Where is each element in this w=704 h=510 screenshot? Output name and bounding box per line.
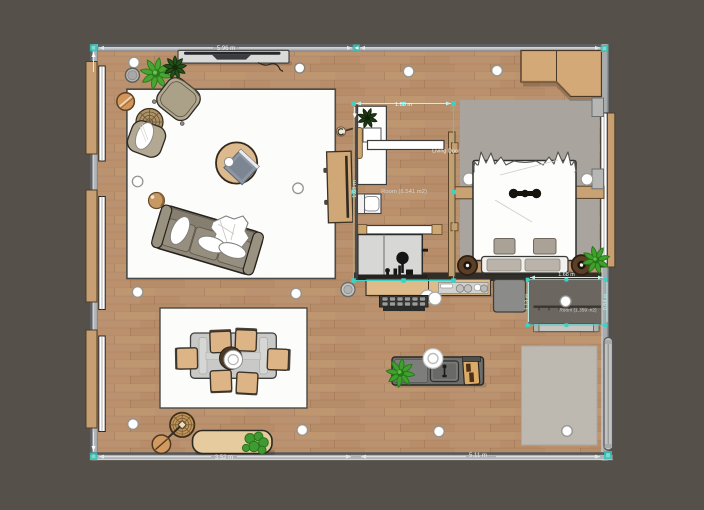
svg-text:1.68 m: 1.68 m [558, 272, 575, 278]
svg-text:Room (1.359 m2): Room (1.359 m2) [559, 308, 597, 314]
svg-text:1.68 m: 1.68 m [352, 180, 358, 198]
svg-text:1.88 m: 1.88 m [395, 102, 412, 108]
svg-text:0.84 m: 0.84 m [603, 293, 609, 310]
svg-text:1.13 m: 1.13 m [525, 293, 531, 310]
svg-text:5.11 m: 5.11 m [469, 453, 487, 459]
svg-text:Room (6.541 m2): Room (6.541 m2) [381, 189, 427, 195]
svg-text:Living Door: Living Door [432, 149, 460, 155]
svg-text:3.52 m: 3.52 m [215, 455, 233, 461]
svg-text:5.96 m: 5.96 m [217, 46, 235, 52]
